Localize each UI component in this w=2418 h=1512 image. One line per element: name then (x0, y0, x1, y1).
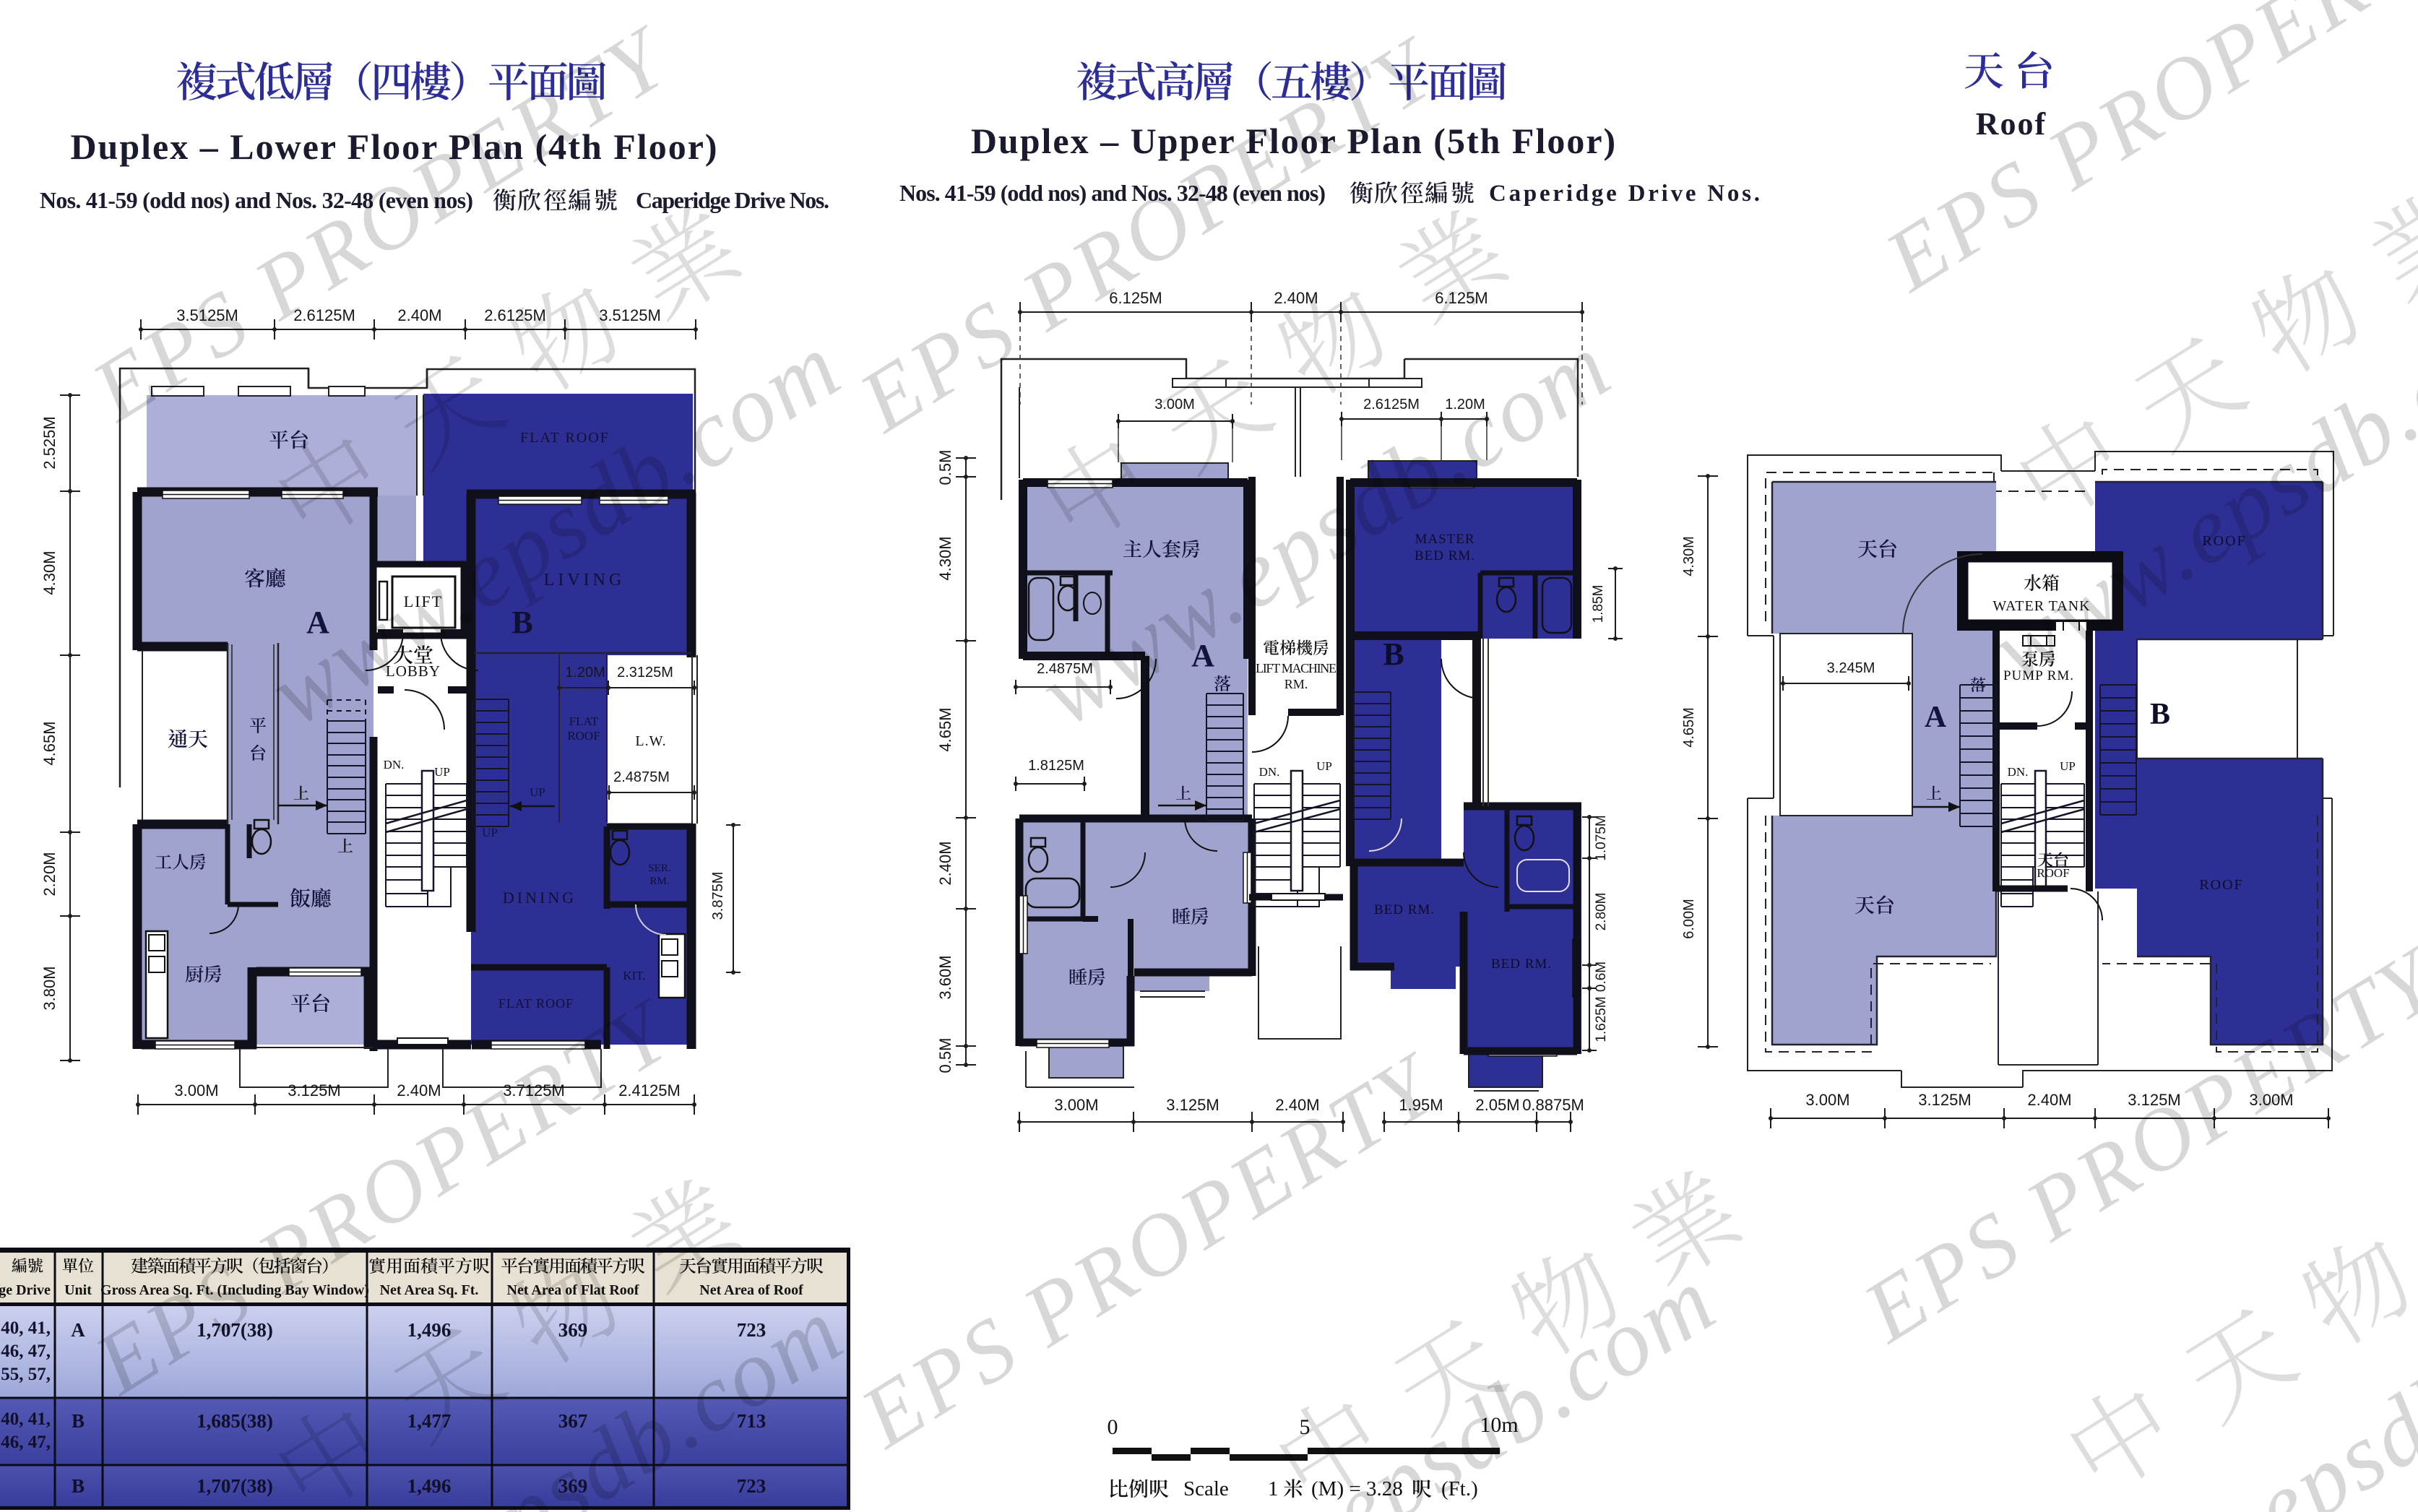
svg-text:0.6M: 0.6M (1594, 962, 1609, 992)
svg-text:3.60M: 3.60M (936, 955, 954, 999)
svg-text:0.5M: 0.5M (936, 1038, 954, 1073)
svg-text:BED RM.: BED RM. (1491, 956, 1552, 972)
svg-text:BED RM.: BED RM. (1374, 902, 1435, 917)
svg-text:UP: UP (434, 765, 450, 779)
svg-text:3.245M: 3.245M (1827, 660, 1875, 676)
svg-text:0.5M: 0.5M (936, 450, 954, 485)
svg-text:L.W.: L.W. (635, 733, 666, 749)
svg-text:FLAT: FLAT (569, 714, 599, 728)
svg-text:2.05M: 2.05M (1475, 1096, 1519, 1114)
svg-text:DINING: DINING (503, 889, 577, 907)
svg-text:723: 723 (737, 1475, 767, 1497)
svg-text:3.125M: 3.125M (1166, 1096, 1219, 1114)
svg-text:3.00M: 3.00M (174, 1081, 218, 1100)
svg-text:3.125M: 3.125M (288, 1081, 340, 1100)
svg-text:DN.: DN. (2008, 765, 2029, 779)
svg-text:BED RM.: BED RM. (1415, 548, 1475, 563)
svg-text:UP: UP (1316, 759, 1332, 773)
svg-text:4, 55, 57,: 4, 55, 57, (0, 1365, 51, 1384)
svg-text:2.20M: 2.20M (40, 852, 59, 896)
svg-text:3.00M: 3.00M (1154, 397, 1195, 412)
svg-text:6.125M: 6.125M (1435, 289, 1487, 307)
svg-text:1.20M: 1.20M (565, 665, 605, 681)
svg-text:ge Drive: ge Drive (0, 1282, 51, 1298)
svg-text:2.80M: 2.80M (1594, 893, 1609, 931)
svg-text:UP: UP (530, 785, 545, 799)
svg-text:RM.: RM. (649, 876, 669, 887)
svg-text:B: B (72, 1475, 85, 1497)
svg-text:3.00M: 3.00M (1054, 1096, 1098, 1114)
svg-text:1.8125M: 1.8125M (1028, 758, 1084, 774)
svg-text:4.65M: 4.65M (1681, 707, 1697, 748)
svg-text:ROOF: ROOF (567, 729, 600, 743)
svg-text:2.40M: 2.40M (397, 1081, 441, 1100)
svg-text:3.80M: 3.80M (40, 966, 59, 1010)
svg-text:3.00M: 3.00M (1805, 1091, 1849, 1109)
svg-text:2.40M: 2.40M (397, 306, 441, 324)
svg-text:B: B (72, 1410, 85, 1432)
svg-text:4.30M: 4.30M (936, 536, 954, 580)
svg-text:Scale: Scale (1183, 1477, 1229, 1500)
svg-text:5, 46, 47,: 5, 46, 47, (0, 1433, 51, 1452)
svg-text:4.65M: 4.65M (936, 707, 954, 751)
svg-text:DN.: DN. (1259, 765, 1280, 779)
svg-text:SER.: SER. (648, 863, 670, 874)
svg-text:1,496: 1,496 (407, 1319, 452, 1341)
svg-text:RM.: RM. (1284, 677, 1308, 691)
svg-text:MASTER: MASTER (1415, 532, 1474, 547)
svg-text:KIT.: KIT. (623, 969, 645, 982)
svg-text:3.125M: 3.125M (1918, 1091, 1971, 1109)
svg-text:1,707(38): 1,707(38) (197, 1475, 273, 1497)
svg-text:4.30M: 4.30M (40, 550, 59, 595)
svg-text:1.625M: 1.625M (1594, 996, 1609, 1042)
svg-text:1,685(38): 1,685(38) (197, 1410, 273, 1432)
svg-text:LIFT MACHINE: LIFT MACHINE (1256, 661, 1337, 675)
svg-text:3.875M: 3.875M (710, 872, 726, 920)
svg-text:B: B (1383, 636, 1404, 672)
svg-text:1.85M: 1.85M (1591, 585, 1606, 623)
svg-text:5, 46, 47,: 5, 46, 47, (0, 1342, 51, 1361)
svg-text:1,496: 1,496 (407, 1475, 452, 1497)
svg-text:4.65M: 4.65M (40, 721, 59, 765)
svg-text:Unit: Unit (64, 1282, 92, 1298)
svg-text:2.40M: 2.40M (2027, 1091, 2071, 1109)
svg-text:A: A (1925, 701, 1947, 734)
svg-text:Caperidge Drive Nos.: Caperidge Drive Nos. (1489, 181, 1760, 207)
svg-text:2.525M: 2.525M (40, 416, 59, 469)
svg-text:2.40M: 2.40M (936, 841, 954, 885)
svg-text:2.3125M: 2.3125M (617, 665, 673, 681)
svg-text:FLAT ROOF: FLAT ROOF (498, 996, 574, 1011)
svg-text:2.6125M: 2.6125M (1363, 397, 1420, 412)
svg-text:8, 40, 41,: 8, 40, 41, (0, 1409, 51, 1429)
svg-text:8, 40, 41,: 8, 40, 41, (0, 1318, 51, 1338)
svg-text:ROOF: ROOF (2037, 866, 2069, 880)
svg-text:0: 0 (1107, 1415, 1118, 1439)
svg-text:UP: UP (482, 826, 498, 839)
svg-text:UP: UP (2060, 759, 2076, 773)
svg-text:DN.: DN. (384, 758, 405, 772)
svg-text:Net Area Sq. Ft.: Net Area Sq. Ft. (380, 1282, 479, 1298)
svg-text:ROOF: ROOF (2199, 877, 2243, 893)
svg-text:1.075M: 1.075M (1594, 815, 1609, 860)
svg-text:2.4875M: 2.4875M (613, 769, 670, 785)
svg-text:0.8875M: 0.8875M (1522, 1096, 1584, 1114)
svg-text:4.30M: 4.30M (1681, 536, 1697, 576)
svg-text:Caperidge Drive Nos.: Caperidge Drive Nos. (636, 187, 829, 213)
svg-text:6.00M: 6.00M (1681, 899, 1697, 939)
svg-text:B: B (2150, 698, 2170, 731)
svg-text:3.5125M: 3.5125M (599, 306, 661, 324)
